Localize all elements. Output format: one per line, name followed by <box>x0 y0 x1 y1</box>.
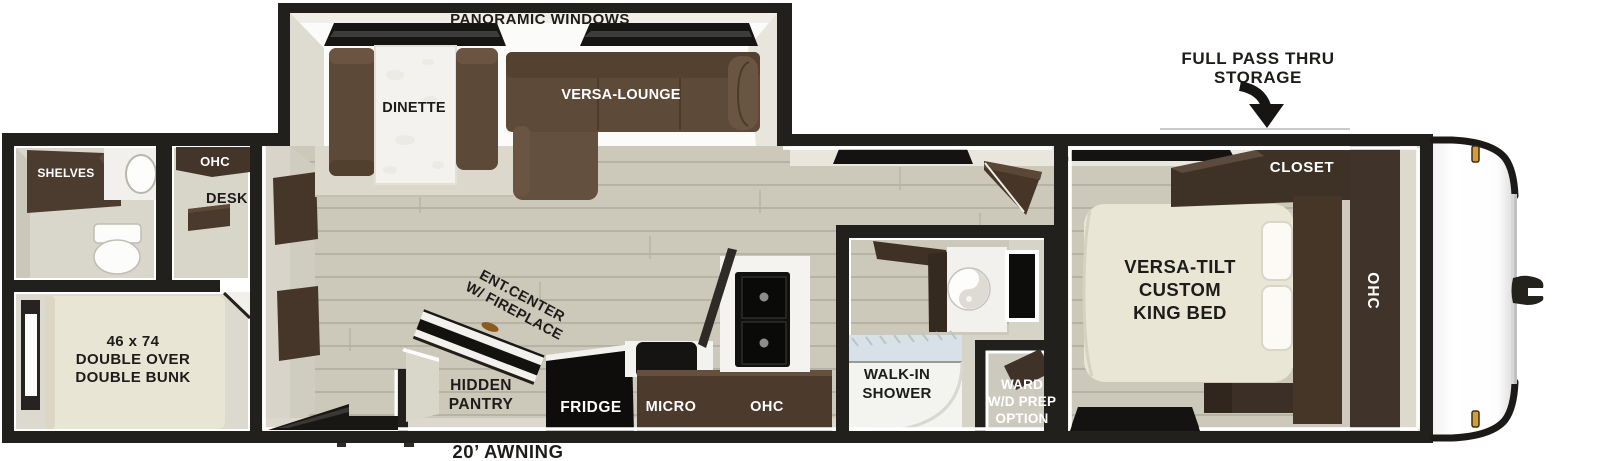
svg-text:WARD: WARD <box>1001 377 1043 392</box>
svg-text:PANORAMIC WINDOWS: PANORAMIC WINDOWS <box>450 11 630 28</box>
svg-text:HIDDEN: HIDDEN <box>450 377 512 394</box>
svg-text:CUSTOM: CUSTOM <box>1139 279 1221 300</box>
svg-text:OHC: OHC <box>200 154 230 169</box>
svg-text:W/D PREP: W/D PREP <box>988 394 1056 409</box>
svg-text:WALK-IN: WALK-IN <box>864 366 930 383</box>
svg-text:SHELVES: SHELVES <box>37 166 94 180</box>
svg-text:CLOSET: CLOSET <box>1270 159 1334 176</box>
svg-text:VERSA-LOUNGE: VERSA-LOUNGE <box>561 87 680 103</box>
svg-text:SHOWER: SHOWER <box>862 385 931 402</box>
svg-text:MICRO: MICRO <box>646 399 697 415</box>
svg-text:OHC: OHC <box>1364 272 1381 309</box>
svg-text:PANTRY: PANTRY <box>449 396 514 413</box>
svg-text:20’ AWNING: 20’ AWNING <box>452 441 563 461</box>
svg-text:FULL PASS THRU: FULL PASS THRU <box>1181 49 1334 68</box>
svg-text:DINETTE: DINETTE <box>382 100 446 116</box>
svg-text:STORAGE: STORAGE <box>1214 68 1302 87</box>
svg-text:DOUBLE BUNK: DOUBLE BUNK <box>75 369 190 386</box>
svg-text:VERSA-TILT: VERSA-TILT <box>1124 256 1236 277</box>
svg-text:46 x 74: 46 x 74 <box>107 333 160 350</box>
svg-text:FRIDGE: FRIDGE <box>560 399 622 416</box>
svg-text:KING BED: KING BED <box>1133 302 1227 323</box>
svg-text:OHC: OHC <box>750 399 784 415</box>
svg-text:OPTION: OPTION <box>996 411 1049 426</box>
svg-text:DESK: DESK <box>206 191 248 207</box>
svg-text:DOUBLE OVER: DOUBLE OVER <box>76 351 190 368</box>
